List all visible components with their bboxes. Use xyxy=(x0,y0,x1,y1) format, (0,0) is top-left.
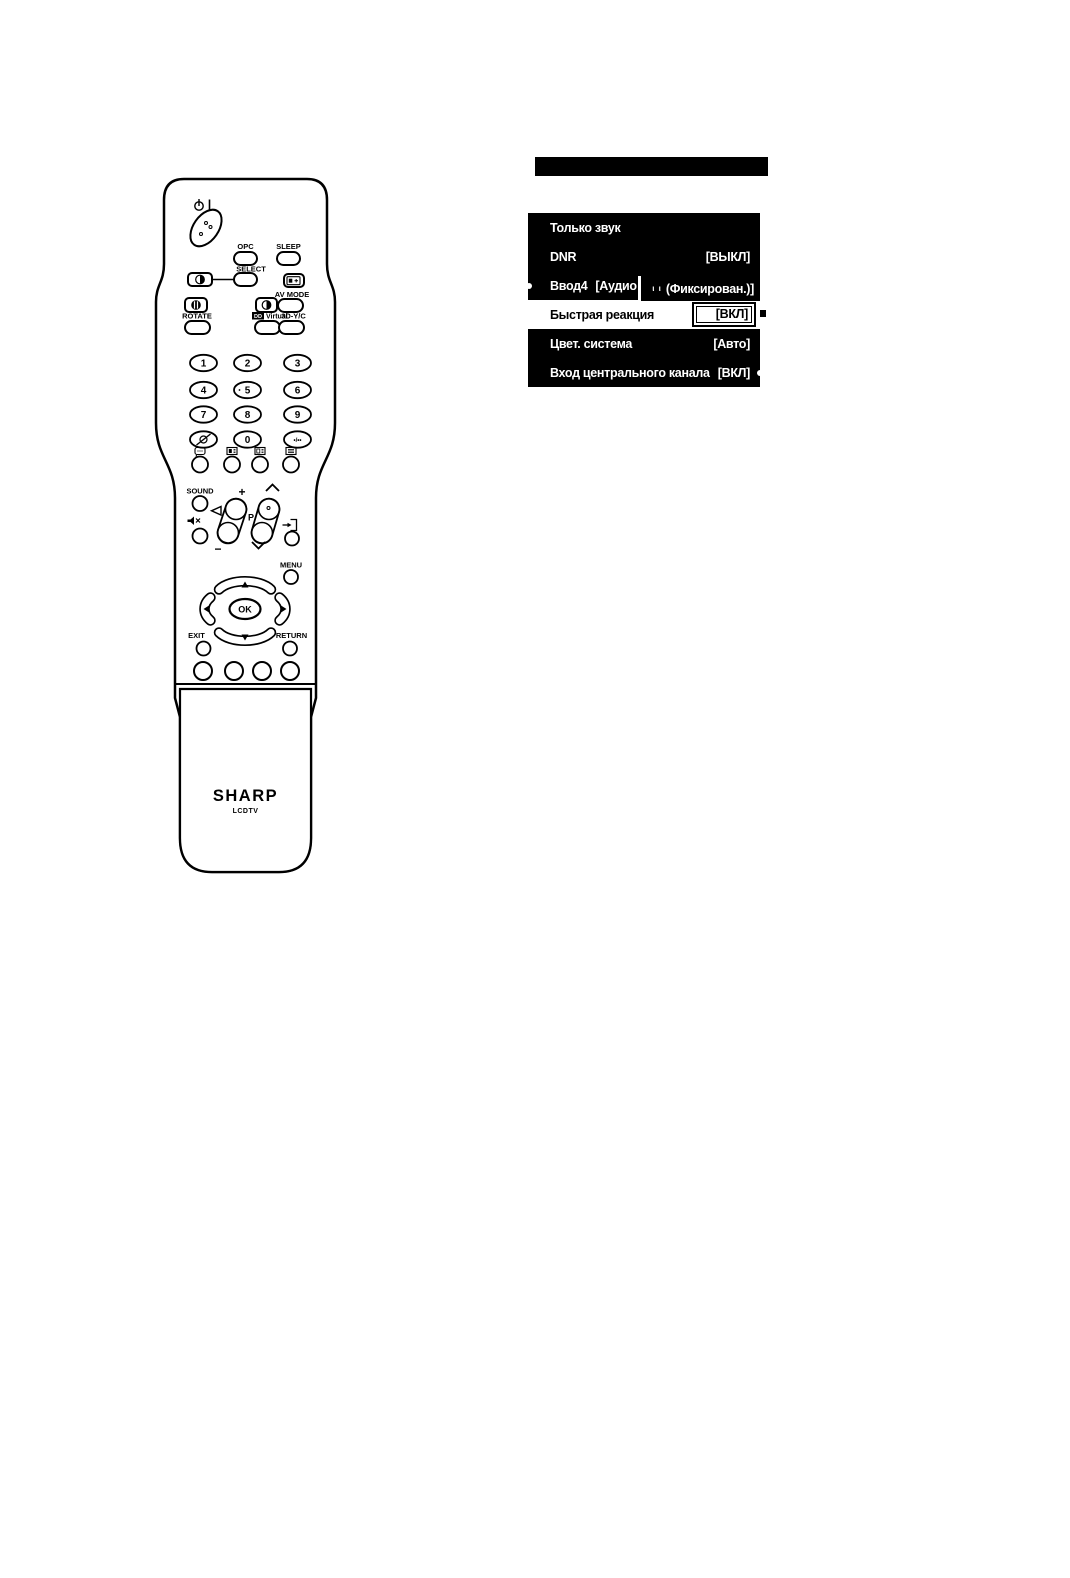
callout-dot-left xyxy=(526,283,532,289)
teletext-hold-button xyxy=(252,457,268,473)
colour-button-2 xyxy=(225,662,243,680)
sleep-button xyxy=(277,252,300,265)
menu-item-input4: Ввод4 [Аудио в ι ι (Фиксирован.)] xyxy=(528,271,760,300)
exit-label: EXIT xyxy=(188,631,205,640)
volume-plus-label: + xyxy=(238,485,245,499)
digit-3: 3 xyxy=(295,359,301,370)
digit-5: 5 xyxy=(245,386,251,397)
menu-item-sound-only: Только звук xyxy=(528,213,760,242)
callout-dot-right xyxy=(757,370,763,376)
menu-item-label: Вход центрального канала xyxy=(550,366,710,380)
menu-item-value: [ВКЛ] xyxy=(718,366,750,380)
channel-p-label: P xyxy=(248,513,254,523)
digit-0: 0 xyxy=(245,435,251,446)
colour-button-4 xyxy=(281,662,299,680)
teletext-index-button xyxy=(283,457,299,473)
menu-item-quick-shoot: Быстрая реакция [ВКЛ] xyxy=(528,300,760,329)
picture-size-button xyxy=(284,274,304,287)
opc-button xyxy=(234,252,257,265)
brand-logo: SHARP xyxy=(213,787,278,805)
rotate-icon xyxy=(192,301,201,310)
menu-item-dnr: DNR [ВЫКЛ] xyxy=(528,242,760,271)
popup-text: (Фиксирован.)] xyxy=(666,282,754,296)
manual-page: OPC SLEEP SELECT AV MODE xyxy=(0,0,1070,1578)
ok-label: OK xyxy=(238,605,252,615)
menu-item-colour-system: Цвет. система [Авто] xyxy=(528,329,760,358)
return-label: RETURN xyxy=(276,631,307,640)
input-source-button xyxy=(285,532,299,546)
av-mode-button xyxy=(278,299,303,312)
menu-item-label: DNR xyxy=(550,250,576,264)
rotate-button xyxy=(185,321,210,334)
menu-item-value: [ВКЛ] xyxy=(696,306,752,323)
digit-5-tactile-dot xyxy=(239,389,241,391)
menu-item-value: [ВЫКЛ] xyxy=(706,250,750,264)
3d-yc-label: 3D-Y/C xyxy=(281,312,306,321)
digit-2: 2 xyxy=(245,359,251,370)
dolby-virtual-icon-button xyxy=(256,298,277,312)
rotate-icon-button xyxy=(185,298,207,312)
slide-cover xyxy=(180,689,311,872)
mute-button xyxy=(193,529,208,544)
colour-button-3 xyxy=(253,662,271,680)
menu-button xyxy=(284,570,298,584)
menu-item-value: [Авто] xyxy=(713,337,750,351)
exit-button xyxy=(197,642,211,656)
svg-text:DD: DD xyxy=(254,314,262,320)
osd-title-bar xyxy=(535,157,768,176)
dot-slash-label: •/•• xyxy=(294,438,302,444)
digit-7: 7 xyxy=(201,410,207,421)
select-button xyxy=(234,273,257,286)
menu-item-label: Ввод4 xyxy=(550,279,587,293)
digit-9: 9 xyxy=(295,410,301,421)
volume-minus-label: − xyxy=(214,542,221,556)
brand-sub-label: LCDTV xyxy=(233,808,259,815)
menu-item-center-channel-input: Вход центрального канала [ВКЛ] xyxy=(528,358,760,387)
colour-button-1 xyxy=(194,662,212,680)
sleep-label: SLEEP xyxy=(276,242,301,251)
return-button xyxy=(283,642,297,656)
menu-item-label: Быстрая реакция xyxy=(550,308,654,322)
teletext-size-button xyxy=(224,457,240,473)
value-popup: ι ι (Фиксирован.)] xyxy=(638,276,760,301)
menu-item-label: Цвет. система xyxy=(550,337,632,351)
opc-label: OPC xyxy=(237,242,254,251)
digit-1: 1 xyxy=(201,359,207,370)
menu-label: MENU xyxy=(280,561,302,570)
menu-item-label: Только звук xyxy=(550,221,621,235)
digit-8: 8 xyxy=(245,410,251,421)
remote-control-figure: OPC SLEEP SELECT AV MODE xyxy=(140,168,350,888)
3d-yc-button xyxy=(279,321,304,334)
popup-partial-text: ι ι xyxy=(652,284,662,293)
osd-menu: Только звук DNR [ВЫКЛ] Ввод4 [Аудио в ι … xyxy=(528,213,760,387)
av-mode-label: AV MODE xyxy=(275,290,309,299)
value-box: [ВКЛ] xyxy=(692,302,756,327)
digit-4: 4 xyxy=(201,386,207,397)
subtitle-button xyxy=(192,457,208,473)
sound-label: SOUND xyxy=(186,487,214,496)
sound-button xyxy=(193,496,208,511)
contrast-adjust-button xyxy=(188,273,212,286)
digit-6: 6 xyxy=(295,386,301,397)
dolby-virtual-button xyxy=(255,321,280,334)
callout-notch-right xyxy=(760,310,766,317)
rotate-label: ROTATE xyxy=(182,312,212,321)
